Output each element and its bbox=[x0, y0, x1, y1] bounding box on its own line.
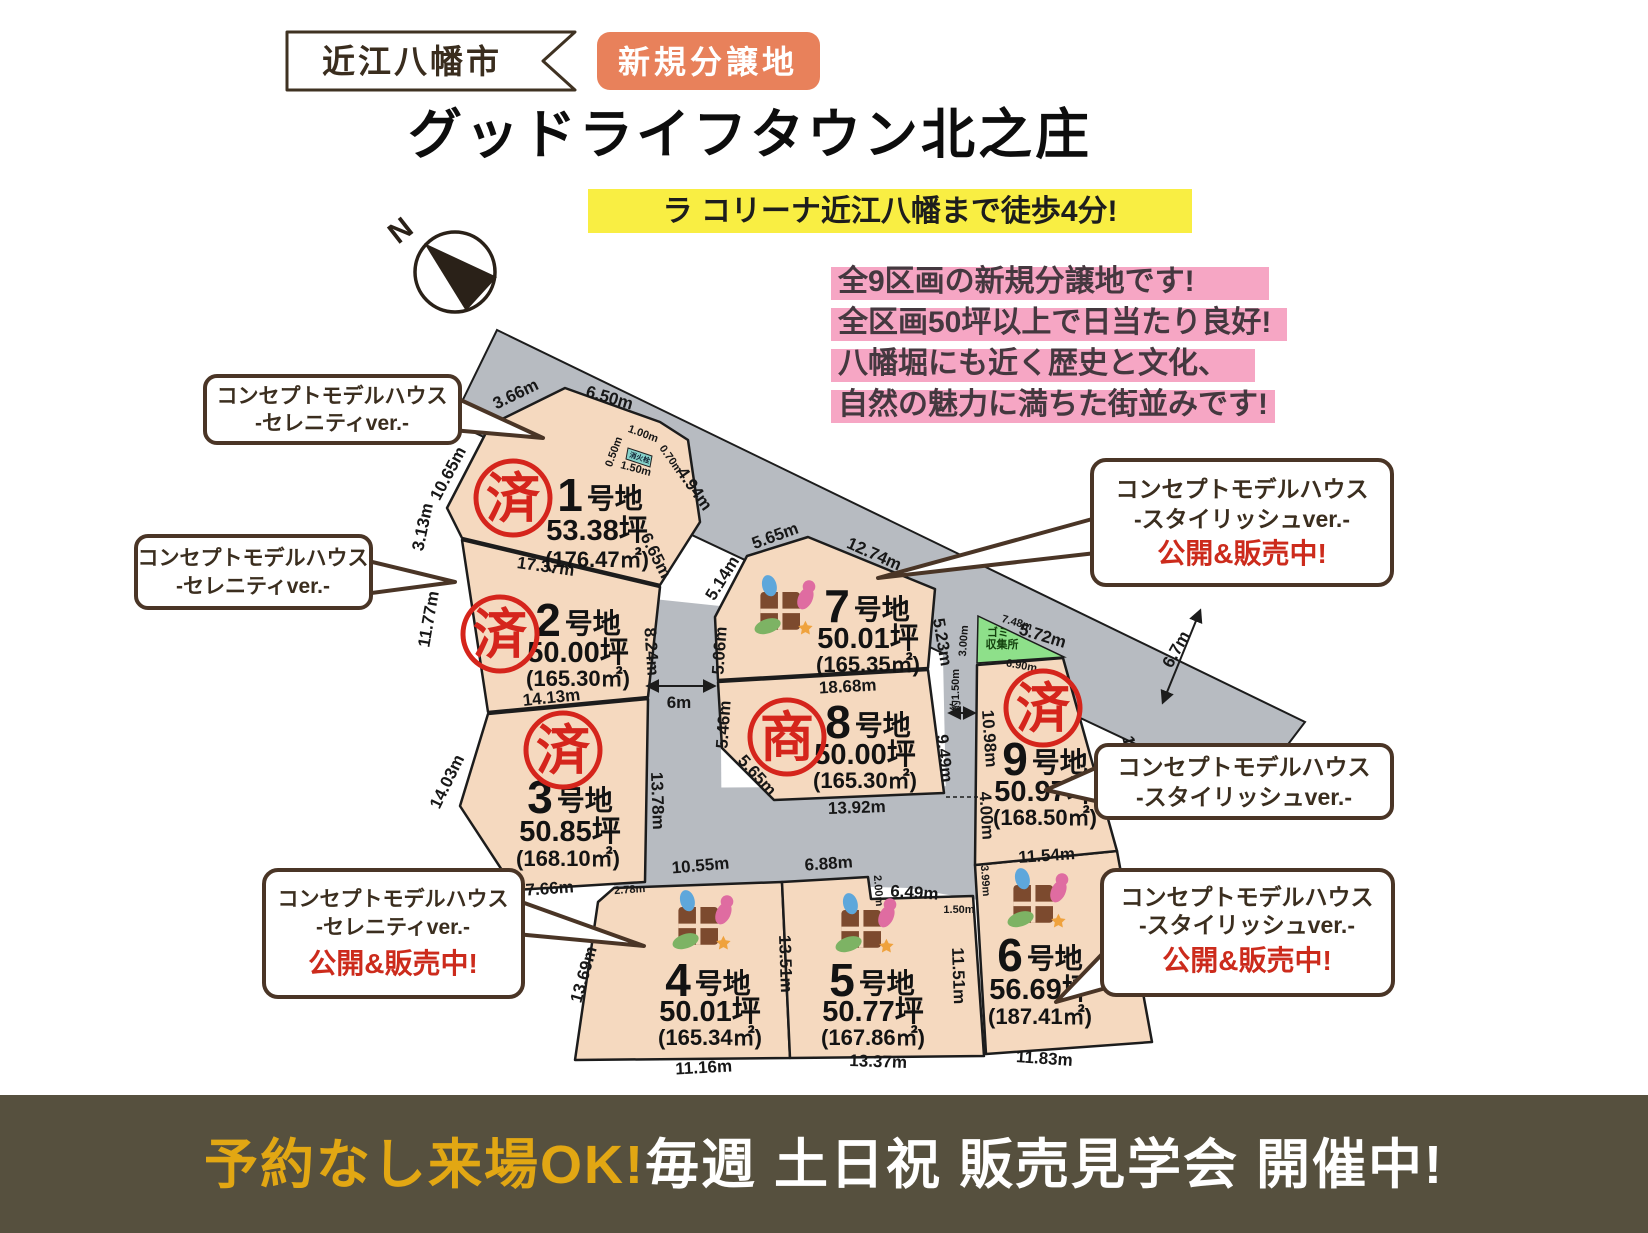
measurement-label: 約1.50m bbox=[948, 669, 962, 711]
stamp-sold-plot-2: 済 bbox=[463, 597, 537, 671]
measurement-label: 11.77m bbox=[414, 589, 443, 648]
plot-3-tsubo: 50.85坪 bbox=[519, 815, 621, 848]
measurement-label: 11.16m bbox=[675, 1057, 733, 1079]
footer-text: 予約なし来場OK!毎週 土日祝 販売見学会 開催中! bbox=[204, 1135, 1444, 1195]
feature-line-2: 全区画50坪以上で日当たり良好! bbox=[837, 305, 1271, 339]
compass-north-label: N bbox=[382, 211, 419, 250]
feature-line-3: 八幡堀にも近く歴史と文化、 bbox=[838, 346, 1228, 380]
footer-banner: 予約なし来場OK!毎週 土日祝 販売見学会 開催中! bbox=[0, 1095, 1648, 1233]
stamp-sold-plot-9: 済 bbox=[1006, 671, 1080, 745]
site-plan-canvas: ゴミ 収集所 消火栓 3.66m6.50m10.65m3.13m17.37m4.… bbox=[0, 0, 1648, 1233]
plot-8-sqm: (165.30㎡) bbox=[813, 768, 917, 793]
stamp-sold-plot-1: 済 bbox=[476, 461, 550, 535]
svg-text:公開&販売中!: 公開&販売中! bbox=[1157, 538, 1327, 569]
plot-9-sqm: (168.50㎡) bbox=[993, 805, 1097, 830]
measurement-label: 13.92m bbox=[828, 797, 886, 818]
svg-text:コンセプトモデルハウス: コンセプトモデルハウス bbox=[1121, 884, 1374, 910]
plot-4-tsubo: 50.01坪 bbox=[659, 995, 761, 1028]
measurement-label: 13.51m bbox=[775, 935, 796, 993]
feature-line-1: 全9区画の新規分譲地です! bbox=[837, 264, 1195, 298]
measurement-label: 1.50m bbox=[943, 904, 974, 916]
svg-text:済: 済 bbox=[536, 721, 591, 781]
callout-plot-4: コンセプトモデルハウス -セレニティver.- 公開&販売中! bbox=[264, 870, 523, 997]
measurement-label: 13.78m bbox=[647, 772, 668, 830]
feature-lines: 全9区画の新規分譲地です! 全区画50坪以上で日当たり良好! 八幡堀にも近く歴史… bbox=[831, 264, 1287, 423]
plot-1-sqm: (176.47㎡) bbox=[545, 547, 649, 572]
new-subdivision-label: 新規分譲地 bbox=[618, 44, 798, 80]
plot-6-sqm: (187.41㎡) bbox=[988, 1004, 1092, 1029]
callout-plot-2: コンセプトモデルハウス -セレニティver.- bbox=[136, 536, 371, 608]
svg-text:公開&販売中!: 公開&販売中! bbox=[1162, 945, 1332, 976]
svg-text:-スタイリッシュver.-: -スタイリッシュver.- bbox=[1136, 784, 1352, 810]
header: 近江八幡市 新規分譲地 グッドライフタウン北之庄 ラ コリーナ近江八幡まで徒歩4… bbox=[287, 32, 1192, 233]
svg-text:コンセプトモデルハウス: コンセプトモデルハウス bbox=[1118, 754, 1371, 780]
svg-text:公開&販売中!: 公開&販売中! bbox=[308, 948, 478, 979]
measurement-label: 5.06m bbox=[708, 626, 730, 675]
callout-plot-6: コンセプトモデルハウス -スタイリッシュver.- 公開&販売中! bbox=[1102, 870, 1393, 995]
svg-text:-スタイリッシュver.-: -スタイリッシュver.- bbox=[1139, 912, 1355, 938]
callout-plot-9: コンセプトモデルハウス -スタイリッシュver.- bbox=[1096, 745, 1392, 818]
measurement-label: 3.99m bbox=[978, 865, 992, 897]
plot-1-tsubo: 53.38坪 bbox=[546, 514, 648, 547]
svg-text:-セレニティver.-: -セレニティver.- bbox=[176, 575, 330, 598]
measurement-label: 6.88m bbox=[804, 852, 853, 874]
measurement-label: 10.98m bbox=[978, 709, 1001, 768]
measurement-label: 2.00m bbox=[871, 875, 885, 907]
callout-plot-1: コンセプトモデルハウス -セレニティver.- bbox=[205, 376, 460, 443]
svg-text:コンセプトモデルハウス: コンセプトモデルハウス bbox=[1116, 476, 1369, 502]
measurement-label: 2.78m bbox=[614, 883, 646, 897]
callout-pointer-2 bbox=[364, 560, 455, 594]
svg-text:済: 済 bbox=[473, 605, 528, 665]
callout-plot-7: コンセプトモデルハウス -スタイリッシュver.- 公開&販売中! bbox=[1092, 460, 1392, 585]
svg-text:済: 済 bbox=[486, 469, 541, 529]
measurement-label: 7.66m bbox=[525, 877, 574, 899]
plot-7-tsubo: 50.01坪 bbox=[817, 622, 919, 655]
measurement-label: 5.46m bbox=[712, 700, 734, 749]
compass: N bbox=[382, 211, 497, 312]
svg-text:コンセプトモデルハウス: コンセプトモデルハウス bbox=[138, 546, 369, 570]
measurement-label: 3.13m bbox=[408, 501, 437, 552]
plot-8-tsubo: 50.00坪 bbox=[814, 738, 916, 771]
page-title: グッドライフタウン北之庄 bbox=[408, 105, 1092, 165]
measurement-label: 11.83m bbox=[1015, 1047, 1073, 1070]
flyer-page: ゴミ 収集所 消火栓 3.66m6.50m10.65m3.13m17.37m4.… bbox=[0, 0, 1648, 1233]
svg-text:-セレニティver.-: -セレニティver.- bbox=[255, 412, 409, 435]
measurement-label: 6.49m bbox=[890, 881, 939, 903]
garbage-station-label2: 収集所 bbox=[986, 637, 1019, 651]
plot-5-tsubo: 50.77坪 bbox=[822, 995, 924, 1028]
plot-2-sqm: (165.30㎡) bbox=[526, 666, 630, 691]
plot-7-sqm: (165.35㎡) bbox=[816, 652, 920, 677]
svg-text:-スタイリッシュver.-: -スタイリッシュver.- bbox=[1134, 506, 1350, 532]
stamp-negotiating-plot-8: 商 bbox=[750, 700, 824, 774]
svg-text:商: 商 bbox=[760, 708, 814, 768]
measurement-label: 11.54m bbox=[1018, 844, 1076, 867]
plot-5-sqm: (167.86㎡) bbox=[821, 1025, 925, 1050]
measurement-label: 6m bbox=[667, 693, 692, 712]
garbage-station-label: ゴミ bbox=[987, 625, 1009, 639]
measurement-label: 8.24m bbox=[640, 627, 662, 676]
plot-4-sqm: (165.34㎡) bbox=[658, 1025, 762, 1050]
city-ribbon-label: 近江八幡市 bbox=[322, 43, 502, 80]
access-highlight-label: ラ コリーナ近江八幡まで徒歩4分! bbox=[662, 195, 1117, 228]
feature-line-4: 自然の魅力に満ちた街並みです! bbox=[838, 387, 1268, 421]
svg-text:コンセプトモデルハウス: コンセプトモデルハウス bbox=[278, 887, 509, 911]
plot-2-tsubo: 50.00坪 bbox=[527, 636, 629, 669]
svg-text:コンセプトモデルハウス: コンセプトモデルハウス bbox=[217, 384, 448, 408]
measurement-label: 13.37m bbox=[849, 1051, 907, 1072]
stamp-sold-plot-3: 済 bbox=[526, 713, 600, 787]
measurement-label: 18.68m bbox=[818, 676, 877, 698]
measurement-label: 11.51m bbox=[948, 947, 969, 1004]
svg-text:済: 済 bbox=[1016, 679, 1071, 739]
plot-3-sqm: (168.10㎡) bbox=[516, 846, 620, 871]
svg-text:-セレニティver.-: -セレニティver.- bbox=[316, 916, 470, 939]
measurement-label: 3.00m bbox=[957, 625, 971, 657]
